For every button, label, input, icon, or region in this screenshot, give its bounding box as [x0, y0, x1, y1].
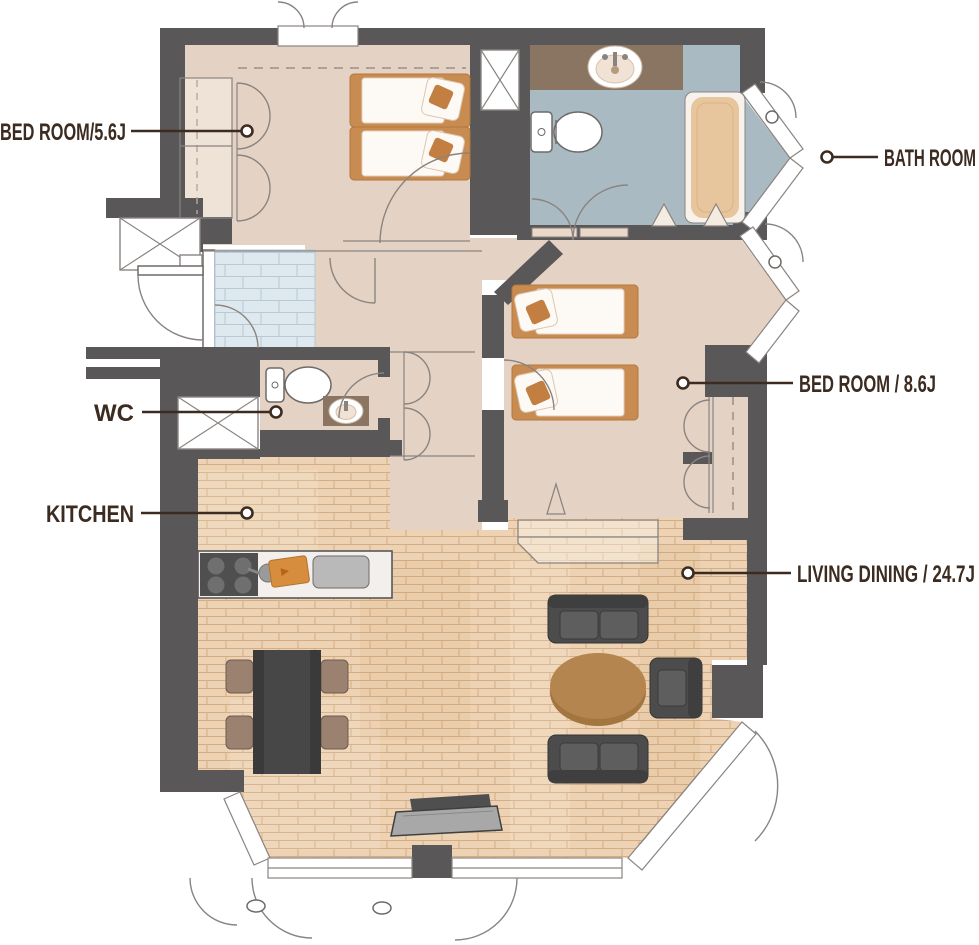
wall-living-corner-block	[712, 665, 763, 718]
vanity-faucet-icon	[622, 54, 628, 60]
kitchen-sink	[313, 556, 369, 588]
sofa	[548, 735, 648, 783]
washroom-door-sill-a	[532, 228, 577, 237]
wall-closet-divider	[683, 452, 712, 464]
vanity-spout-icon	[613, 52, 617, 66]
wall-bedroom2-left-stub	[478, 500, 508, 522]
bedroom2-label: BED ROOM / 8.6J	[799, 371, 936, 398]
washroom-door-sill-b	[580, 228, 628, 237]
leader-dot	[822, 152, 833, 163]
cutting-board-icon	[268, 555, 309, 587]
bedroom2-bay-handle	[769, 256, 781, 268]
toilet-bowl	[554, 112, 602, 152]
wall-left-upper	[160, 28, 185, 218]
bed	[350, 74, 470, 127]
wall-wc-top	[203, 347, 390, 360]
wall-bottom-left-corner	[160, 770, 244, 792]
corridor-floor	[390, 455, 482, 530]
bathroom-label: BATH ROOM	[884, 145, 976, 172]
leader-dot	[683, 568, 694, 579]
burner-icon	[235, 577, 252, 594]
wall-bedroom2-left-a	[482, 295, 504, 358]
balcony-window-handle-2	[373, 902, 391, 914]
label-bathroom: BATH ROOM	[822, 145, 977, 172]
entrance-door-swing	[138, 275, 203, 340]
leader-dot	[242, 508, 253, 519]
dining-chair	[321, 716, 348, 749]
wall-bath-corner	[740, 28, 765, 93]
wall-left-kitchen	[160, 449, 198, 779]
entrance-tile-floor	[215, 250, 315, 348]
dining-table-edge	[253, 650, 264, 774]
wc-label: WC	[94, 400, 134, 427]
bedroom1-top-door-swing	[278, 2, 358, 28]
burner-icon	[208, 577, 225, 594]
wc-faucet-icon	[344, 401, 348, 411]
wall-top	[160, 28, 765, 45]
wall-balcony-pier	[412, 845, 452, 878]
dining-chair	[226, 660, 253, 693]
balcony-window-handle-1	[247, 900, 265, 912]
dining-chair	[321, 660, 348, 693]
armchair	[650, 658, 702, 718]
balcony-door-swing	[455, 878, 517, 940]
bedroom1-top-door	[278, 26, 358, 46]
balcony-diagonal-door-swing	[755, 731, 778, 841]
vanity-faucet-icon	[602, 54, 608, 60]
vanity-drain-icon	[611, 66, 619, 74]
wall-bar-a	[86, 347, 162, 359]
wall-wc-bottom	[260, 430, 390, 457]
toilet-tank	[531, 112, 552, 152]
bedroom1-label: BED ROOM/5.6J	[0, 119, 126, 146]
floor-plan-page: BED ROOM/5.6J BATH ROOM BED ROOM / 8.6J …	[0, 0, 979, 945]
entrance-step	[203, 250, 215, 348]
leader-dot	[242, 126, 253, 137]
wall-bar-b	[86, 367, 162, 379]
bathroom-bay-handle	[766, 111, 778, 123]
living-label: LIVING DINING / 24.7J	[797, 561, 975, 588]
wall-living-right	[747, 530, 767, 665]
dining-chair	[226, 716, 253, 749]
entrance-door-leaf	[138, 266, 203, 275]
wall-corridor-stub	[388, 440, 402, 456]
wall-bedroom2-left-b	[482, 410, 504, 502]
burner-icon	[235, 558, 252, 575]
bed	[512, 285, 638, 338]
bathtub-basin	[691, 97, 739, 218]
low-cabinet	[518, 520, 658, 563]
bedroom1-closet-floor	[180, 78, 232, 218]
bed	[512, 365, 638, 420]
leader-dot	[271, 407, 282, 418]
coffee-table	[550, 653, 646, 719]
sofa	[548, 595, 648, 643]
kitchen-label: KITCHEN	[46, 501, 134, 528]
wc-toilet-tank	[266, 368, 284, 402]
burner-icon	[208, 558, 225, 575]
wall-left-of-shaft	[160, 397, 178, 449]
dining-table-edge	[310, 650, 321, 774]
wall-bedroom2-closet-right	[748, 397, 767, 520]
balcony-casement-swing-1	[190, 878, 237, 925]
wall-jut-left	[106, 198, 184, 218]
bed	[350, 127, 470, 180]
leader-dot	[678, 378, 689, 389]
floor-plan: BED ROOM/5.6J BATH ROOM BED ROOM / 8.6J …	[0, 0, 979, 945]
